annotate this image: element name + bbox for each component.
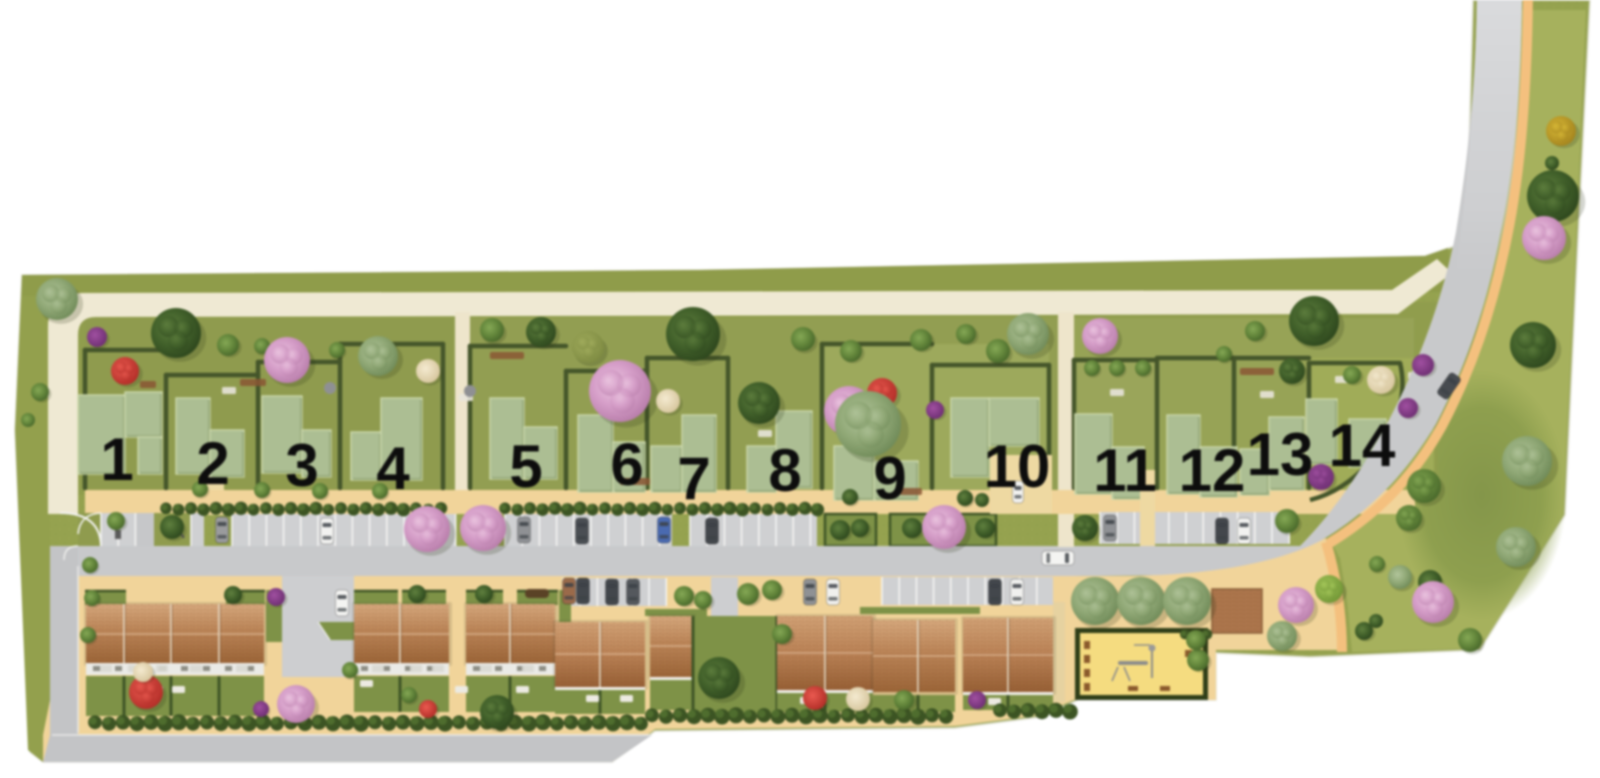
svg-text:14: 14: [1329, 412, 1396, 479]
svg-text:1: 1: [100, 426, 133, 493]
svg-text:13: 13: [1247, 421, 1314, 488]
svg-text:8: 8: [768, 437, 801, 504]
svg-text:7: 7: [677, 445, 710, 512]
svg-text:10: 10: [984, 433, 1051, 500]
svg-text:6: 6: [610, 431, 643, 498]
svg-text:3: 3: [285, 432, 318, 499]
svg-text:9: 9: [873, 445, 906, 512]
svg-text:12: 12: [1179, 437, 1246, 504]
svg-text:4: 4: [376, 435, 410, 502]
svg-text:11: 11: [1093, 437, 1156, 504]
svg-text:5: 5: [509, 433, 542, 500]
svg-text:2: 2: [196, 430, 229, 497]
